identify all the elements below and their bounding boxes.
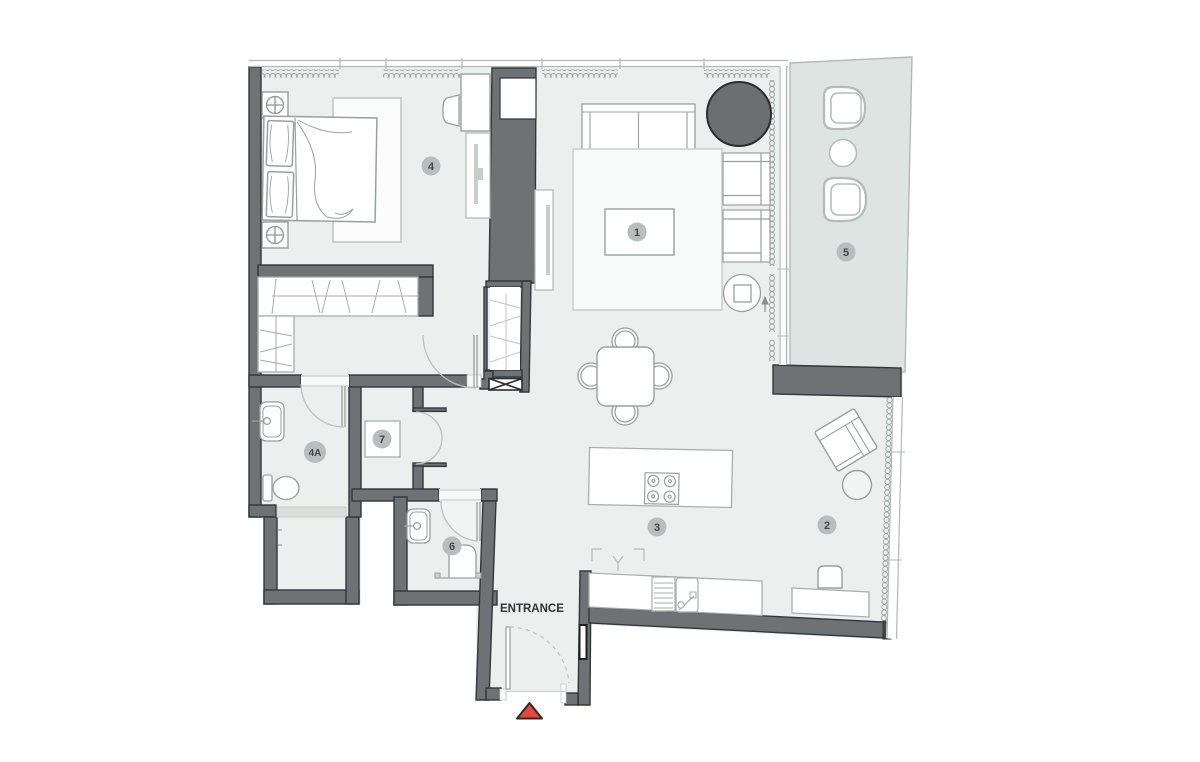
svg-text:6: 6 xyxy=(449,541,455,553)
svg-text:2: 2 xyxy=(824,520,830,532)
svg-text:7: 7 xyxy=(379,434,385,446)
svg-text:3: 3 xyxy=(654,522,660,534)
svg-text:ENTRANCE: ENTRANCE xyxy=(500,603,564,615)
svg-text:5: 5 xyxy=(843,247,849,259)
svg-text:4A: 4A xyxy=(309,448,322,459)
svg-text:1: 1 xyxy=(634,227,640,239)
svg-text:4: 4 xyxy=(428,161,435,173)
